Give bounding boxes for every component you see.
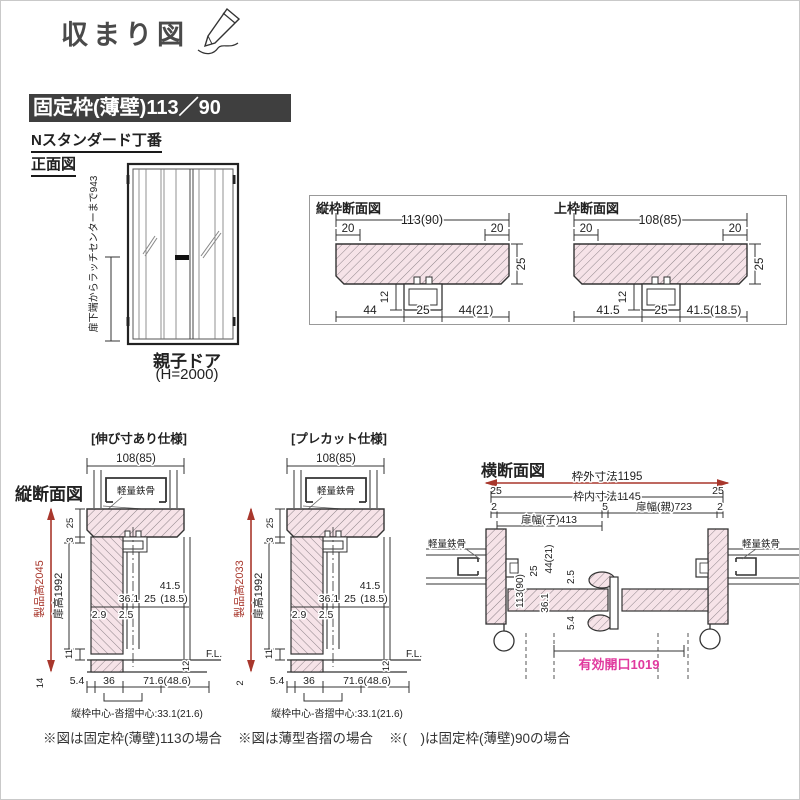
- vertical-section-diagram-1: [伸び寸あり仕様] 108(85) 軽量鉄骨: [29, 431, 225, 731]
- steel-stud-label: 軽量鉄骨: [317, 485, 355, 497]
- vertical-frame-section-drawing: 縦枠断面図 113(90) 20 20: [312, 198, 548, 322]
- svg-text:12: 12: [379, 291, 391, 303]
- hinge-type-label: Nスタンダード丁番: [31, 129, 162, 153]
- svg-text:5.4: 5.4: [566, 616, 577, 630]
- svg-text:41.5: 41.5: [596, 303, 620, 317]
- svg-text:25: 25: [654, 303, 668, 317]
- svg-text:36.1: 36.1: [119, 593, 140, 605]
- svg-text:36: 36: [303, 675, 315, 687]
- product-height-label: 製品高2045: [32, 560, 46, 617]
- svg-text:3: 3: [65, 537, 76, 542]
- svg-text:12: 12: [617, 291, 629, 303]
- svg-text:71.6(48.6): 71.6(48.6): [143, 675, 191, 687]
- svg-text:25: 25: [712, 485, 724, 497]
- svg-text:71.6(48.6): 71.6(48.6): [343, 675, 391, 687]
- top-gap-dimensions: 25 3: [65, 509, 85, 543]
- svg-text:12: 12: [181, 661, 192, 672]
- top-width-dimension: 108(85): [287, 453, 384, 474]
- bottom-dimensions: 5.4 36 71.6(48.6): [270, 675, 409, 693]
- svg-text:108(85): 108(85): [638, 213, 681, 227]
- svg-text:5.4: 5.4: [70, 675, 85, 687]
- svg-text:扉幅(子)413: 扉幅(子)413: [521, 513, 577, 526]
- svg-text:108(85): 108(85): [116, 453, 156, 465]
- groove-depth-dimension: 12: [379, 284, 402, 310]
- svg-text:5: 5: [602, 501, 608, 513]
- svg-text:25: 25: [344, 593, 356, 605]
- steel-stud-label-left: 軽量鉄骨: [428, 538, 466, 550]
- height-dimension: 25: [749, 244, 766, 284]
- svg-text:2: 2: [717, 501, 723, 513]
- svg-text:枠外寸法1195: 枠外寸法1195: [572, 471, 643, 483]
- svg-text:14: 14: [35, 678, 46, 689]
- floor-level-label: F.L.: [206, 649, 222, 660]
- product-height-label: 製品高2033: [232, 560, 246, 617]
- threshold-profile: [291, 660, 323, 672]
- center-note-bracket: [304, 693, 342, 701]
- jamb-left: [486, 529, 506, 624]
- jamb-groove-right: [696, 559, 708, 577]
- svg-text:25: 25: [529, 565, 540, 577]
- latch-dimension-text: 扉下端からラッチセンターまで943: [87, 175, 100, 332]
- footnotes: ※図は固定枠(薄壁)113の場合 ※図は薄型沓摺の場合 ※( )は固定枠(薄壁)…: [43, 727, 571, 747]
- child-dimension-row: 扉幅(子)413: [497, 513, 602, 531]
- threshold-profile: [91, 660, 123, 672]
- svg-text:20: 20: [729, 223, 742, 235]
- top-width-dimension: 108(85): [87, 453, 184, 474]
- svg-text:41.5(18.5): 41.5(18.5): [687, 303, 742, 317]
- svg-text:44(21): 44(21): [544, 545, 555, 574]
- vertical-annotations: 113(90) 44(21) 25 36.1 2.5 5.4: [515, 545, 577, 630]
- center-note-bracket: [104, 693, 142, 701]
- center-note: 縦枠中心-沓摺中心:33.1(21.6): [71, 707, 203, 720]
- svg-text:扉高1992: 扉高1992: [51, 573, 65, 619]
- footnote-3: ※( )は固定枠(薄壁)90の場合: [389, 727, 571, 747]
- svg-text:41.5: 41.5: [160, 580, 181, 592]
- bottom-dimensions: 5.4 36 71.6(48.6): [70, 675, 209, 693]
- svg-text:2: 2: [235, 680, 246, 685]
- door-height-dimension: 扉高1992: [251, 543, 274, 649]
- svg-text:3: 3: [265, 537, 276, 542]
- top-frame-section-drawing: 上枠断面図 108(85) 20 20: [550, 198, 786, 322]
- svg-text:25: 25: [416, 303, 430, 317]
- svg-text:20: 20: [342, 223, 355, 235]
- svg-text:11: 11: [64, 649, 75, 659]
- svg-text:25: 25: [490, 485, 502, 497]
- steel-stud-label: 軽量鉄骨: [117, 485, 155, 497]
- steel-stud-label-right: 軽量鉄骨: [742, 538, 780, 550]
- svg-text:11: 11: [264, 649, 275, 659]
- frame-section-box: 縦枠断面図 113(90) 20 20: [309, 195, 787, 325]
- svg-text:20: 20: [580, 223, 593, 235]
- svg-text:2.9: 2.9: [92, 609, 107, 621]
- svg-text:25: 25: [265, 518, 276, 529]
- svg-text:2: 2: [491, 501, 497, 513]
- svg-text:44(21): 44(21): [459, 303, 494, 317]
- svg-text:36: 36: [103, 675, 115, 687]
- groove-depth-dimension: 12: [617, 284, 640, 310]
- floor-level-label: F.L.: [406, 649, 422, 660]
- jamb-right: [708, 529, 728, 624]
- footnote-2: ※図は薄型沓摺の場合: [238, 727, 373, 747]
- steel-stud-left: [458, 558, 478, 575]
- vertical-frame-section-title: 縦枠断面図: [316, 201, 381, 216]
- footnote-1: ※図は固定枠(薄壁)113の場合: [43, 727, 222, 747]
- steel-stud-right: [736, 558, 756, 575]
- svg-text:36.1: 36.1: [540, 593, 551, 613]
- horizontal-section-drawing: 枠外寸法1195 25 25 枠内寸法1145 2 5 扉幅(親)723 2: [426, 471, 800, 696]
- svg-text:2.5: 2.5: [319, 609, 334, 621]
- pencil-icon: [193, 3, 249, 57]
- product-header-bar: 固定枠(薄壁)113／90: [29, 94, 291, 122]
- door-frame: [128, 164, 238, 344]
- wall-left: [426, 549, 486, 584]
- svg-text:36.1: 36.1: [319, 593, 340, 605]
- opening-label: 有効開口1019: [579, 657, 660, 672]
- top-frame-section-title: 上枠断面図: [554, 201, 619, 216]
- svg-text:2.9: 2.9: [292, 609, 307, 621]
- svg-text:25: 25: [144, 593, 156, 605]
- opening-dimension: 有効開口1019: [554, 645, 684, 672]
- svg-text:2.5: 2.5: [566, 570, 577, 584]
- swing-projection-lines: [526, 633, 688, 679]
- page-title: 収まり図: [61, 13, 189, 52]
- vertical-section-diagram-2: [プレカット仕様] 108(85) 軽量鉄骨: [229, 431, 425, 731]
- leader-line: [307, 497, 322, 510]
- svg-text:113(90): 113(90): [401, 213, 443, 227]
- door-height-dimension: 扉高1992: [51, 543, 74, 649]
- svg-text:12: 12: [381, 661, 392, 672]
- svg-text:108(85): 108(85): [316, 453, 356, 465]
- frame-profile: [336, 244, 509, 284]
- bottom-dimensions: 44 25 44(21): [336, 303, 509, 322]
- bottom-dimensions: 41.5 25 41.5(18.5): [574, 303, 747, 322]
- height-dimension: 25: [511, 244, 528, 284]
- frame-profile: [574, 244, 747, 284]
- svg-text:扉高1992: 扉高1992: [251, 573, 265, 619]
- center-note: 縦枠中心-沓摺中心:33.1(21.6): [271, 707, 403, 720]
- svg-text:5.4: 5.4: [270, 675, 285, 687]
- diagram-caption: [プレカット仕様]: [291, 431, 387, 446]
- svg-text:25: 25: [65, 518, 76, 529]
- latch-dimension-bracket: [105, 257, 120, 341]
- front-view-label: 正面図: [31, 153, 76, 177]
- drawing-page: 収まり図 固定枠(薄壁)113／90 Nスタンダード丁番 正面図: [0, 0, 800, 800]
- door-caption-sub: (H=2000): [123, 366, 251, 383]
- wall-right: [728, 549, 800, 584]
- leader-line: [107, 497, 122, 510]
- svg-text:25: 25: [516, 258, 528, 271]
- svg-text:25: 25: [754, 258, 766, 271]
- svg-text:20: 20: [491, 223, 504, 235]
- diagram-caption: [伸び寸あり仕様]: [91, 431, 187, 446]
- svg-text:113(90): 113(90): [515, 574, 526, 608]
- svg-text:2.5: 2.5: [119, 609, 134, 621]
- svg-text:41.5: 41.5: [360, 580, 381, 592]
- svg-text:44: 44: [363, 303, 377, 317]
- top-gap-dimensions: 25 3: [265, 509, 285, 543]
- parent-door-leaf: [622, 589, 708, 611]
- door-handle: [175, 255, 189, 260]
- svg-text:扉幅(親)723: 扉幅(親)723: [636, 500, 692, 513]
